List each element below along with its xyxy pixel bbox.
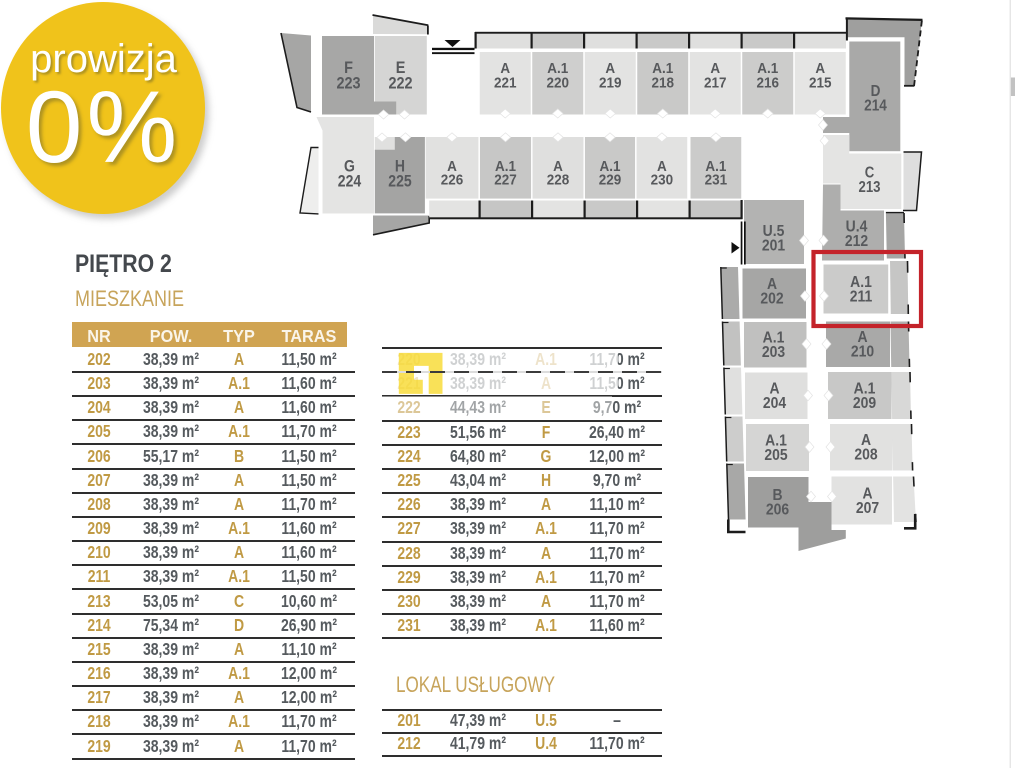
svg-text:207: 207: [856, 500, 879, 517]
svg-text:212: 212: [845, 233, 868, 250]
svg-text:215: 215: [809, 75, 832, 92]
svg-text:217: 217: [704, 75, 727, 92]
svg-text:205: 205: [764, 447, 787, 464]
svg-text:229: 229: [599, 172, 622, 189]
svg-text:204: 204: [763, 395, 787, 412]
svg-text:227: 227: [494, 172, 517, 189]
svg-text:231: 231: [705, 172, 728, 189]
svg-text:210: 210: [851, 344, 874, 361]
svg-text:218: 218: [652, 75, 675, 92]
svg-text:203: 203: [762, 344, 785, 361]
svg-text:223: 223: [336, 74, 360, 92]
svg-text:208: 208: [854, 447, 877, 464]
svg-text:202: 202: [760, 291, 783, 308]
svg-text:222: 222: [388, 74, 412, 92]
svg-text:221: 221: [494, 75, 517, 92]
svg-text:201: 201: [762, 238, 785, 255]
svg-text:225: 225: [388, 172, 412, 190]
svg-text:211: 211: [850, 289, 872, 306]
svg-text:209: 209: [853, 395, 876, 412]
svg-text:226: 226: [441, 172, 464, 189]
svg-text:219: 219: [599, 75, 622, 92]
svg-text:220: 220: [547, 75, 570, 92]
svg-text:213: 213: [859, 179, 881, 196]
svg-text:224: 224: [338, 172, 362, 190]
svg-text:214: 214: [864, 98, 887, 115]
svg-text:216: 216: [757, 75, 780, 92]
svg-text:206: 206: [766, 502, 789, 519]
svg-text:228: 228: [547, 172, 570, 189]
svg-text:230: 230: [651, 172, 674, 189]
